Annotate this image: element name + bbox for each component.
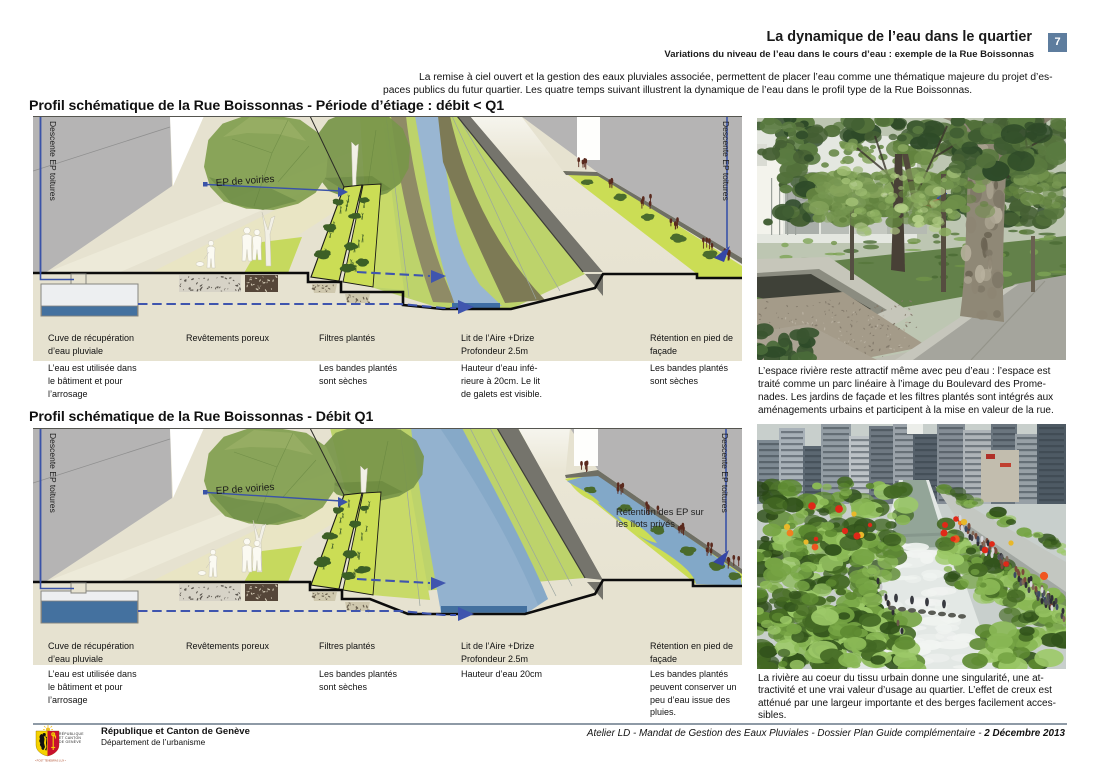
- svg-text:Revêtements poreux: Revêtements poreux: [186, 641, 270, 651]
- svg-text:façade: façade: [650, 654, 677, 664]
- svg-text:d’eau pluviale: d’eau pluviale: [48, 346, 103, 356]
- svg-text:Rétention en pied de: Rétention en pied de: [650, 641, 733, 651]
- svg-text:Descente EP toitures: Descente EP toitures: [721, 121, 731, 201]
- svg-text:façade: façade: [650, 346, 677, 356]
- svg-text:d’eau pluviale: d’eau pluviale: [48, 654, 103, 664]
- svg-text:Filtres plantés: Filtres plantés: [319, 641, 376, 651]
- svg-text:Filtres plantés: Filtres plantés: [319, 333, 376, 343]
- svg-text:Profondeur 2.5m: Profondeur 2.5m: [461, 654, 528, 664]
- svg-text:Descente EP toitures: Descente EP toitures: [48, 433, 58, 513]
- svg-text:les îlots privés: les îlots privés: [616, 519, 675, 529]
- svg-text:Descente EP toitures: Descente EP toitures: [48, 121, 58, 201]
- svg-text:• POST TENEBRAS LUX •: • POST TENEBRAS LUX •: [35, 759, 66, 763]
- svg-text:Profondeur 2.5m: Profondeur 2.5m: [461, 346, 528, 356]
- svg-text:Revêtements poreux: Revêtements poreux: [186, 333, 270, 343]
- svg-text:Cuve de récupération: Cuve de récupération: [48, 641, 134, 651]
- svg-text:Rétention en pied de: Rétention en pied de: [650, 333, 733, 343]
- svg-text:Lit de l’Aire +Drize: Lit de l’Aire +Drize: [461, 333, 534, 343]
- svg-text:Descente EP toitures: Descente EP toitures: [720, 433, 730, 513]
- svg-text:Lit de l’Aire +Drize: Lit de l’Aire +Drize: [461, 641, 534, 651]
- svg-text:Cuve de récupération: Cuve de récupération: [48, 333, 134, 343]
- svg-text:Rétention des EP sur: Rétention des EP sur: [616, 507, 704, 517]
